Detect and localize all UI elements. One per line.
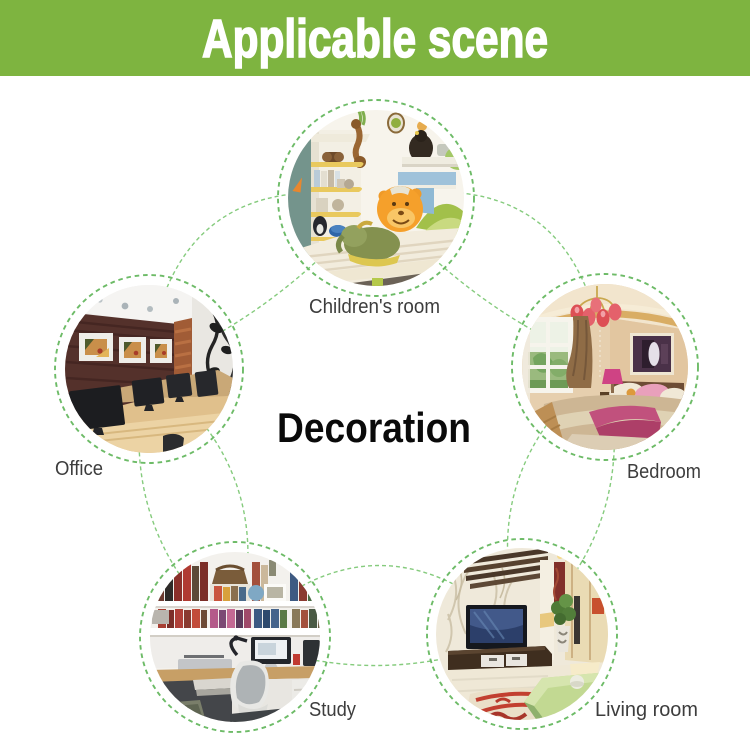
svg-text:Children's room: Children's room bbox=[309, 296, 440, 318]
svg-text:Applicable scene: Applicable scene bbox=[202, 9, 548, 69]
svg-text:Decoration: Decoration bbox=[277, 404, 471, 451]
svg-text:Study: Study bbox=[309, 699, 356, 721]
svg-text:Bedroom: Bedroom bbox=[627, 461, 701, 483]
svg-text:Living room: Living room bbox=[595, 699, 698, 721]
svg-text:Office: Office bbox=[55, 458, 103, 480]
